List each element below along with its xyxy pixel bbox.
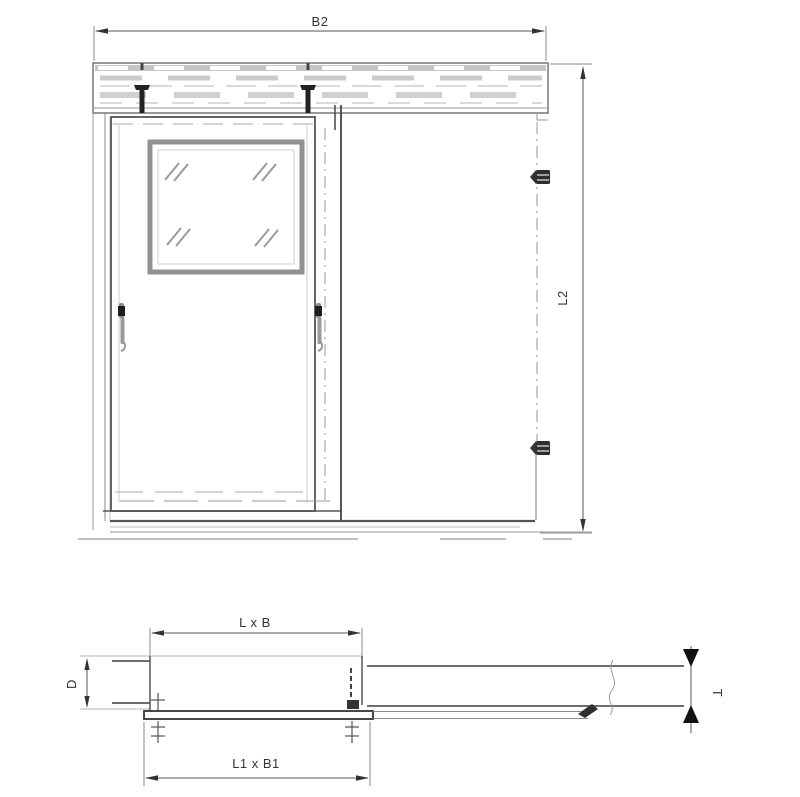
top-track-rail: [93, 63, 548, 120]
l2-arrow-bottom: [580, 519, 585, 532]
technical-drawing-canvas: B2: [0, 0, 800, 797]
l1xb1-arrow-left: [145, 775, 158, 780]
floor-guide-right: [345, 668, 359, 743]
door-leaf: [103, 117, 341, 511]
b2-arrow-left: [95, 28, 108, 33]
dimension-l2: L2: [540, 64, 592, 533]
dimension-d: D: [64, 658, 90, 708]
wall-fixing-bottom: [530, 441, 550, 455]
dimension-label-l2: L2: [555, 290, 570, 305]
t-arrow-top: [683, 649, 699, 667]
dimension-label-lxb: L x B: [239, 615, 271, 630]
lxb-arrow-right: [348, 630, 361, 635]
d-arrow-bottom: [84, 696, 89, 708]
drawing-svg: B2: [0, 0, 800, 797]
dimension-lxb: L x B: [150, 615, 362, 657]
wall-niche-line: [530, 122, 550, 520]
window-frame: [150, 142, 302, 272]
lxb-arrow-left: [151, 630, 164, 635]
door-handle-right: [315, 303, 322, 351]
threshold-and-floor: [78, 521, 592, 539]
b2-arrow-right: [532, 28, 545, 33]
d-arrow-top: [84, 658, 89, 670]
dimension-label-l1xb1: L1 x B1: [232, 756, 280, 771]
door-slide-edge: [325, 105, 341, 521]
l2-arrow-top: [580, 66, 585, 79]
dimension-b2: B2: [94, 14, 546, 61]
dimension-label-b2: B2: [312, 14, 329, 29]
dimension-t: T: [683, 646, 725, 733]
t-arrow-bottom: [683, 705, 699, 723]
elevation-view: B2: [78, 14, 592, 539]
wall-fixing-top: [530, 170, 550, 184]
dimension-label-d: D: [64, 679, 79, 689]
l1xb1-arrow-right: [356, 775, 369, 780]
dimension-label-t: T: [710, 689, 725, 697]
dimension-l1xb1: L1 x B1: [144, 722, 370, 786]
door-window: [150, 142, 302, 272]
plan-view: L x B: [64, 615, 725, 786]
door-frame-left: [93, 113, 110, 530]
